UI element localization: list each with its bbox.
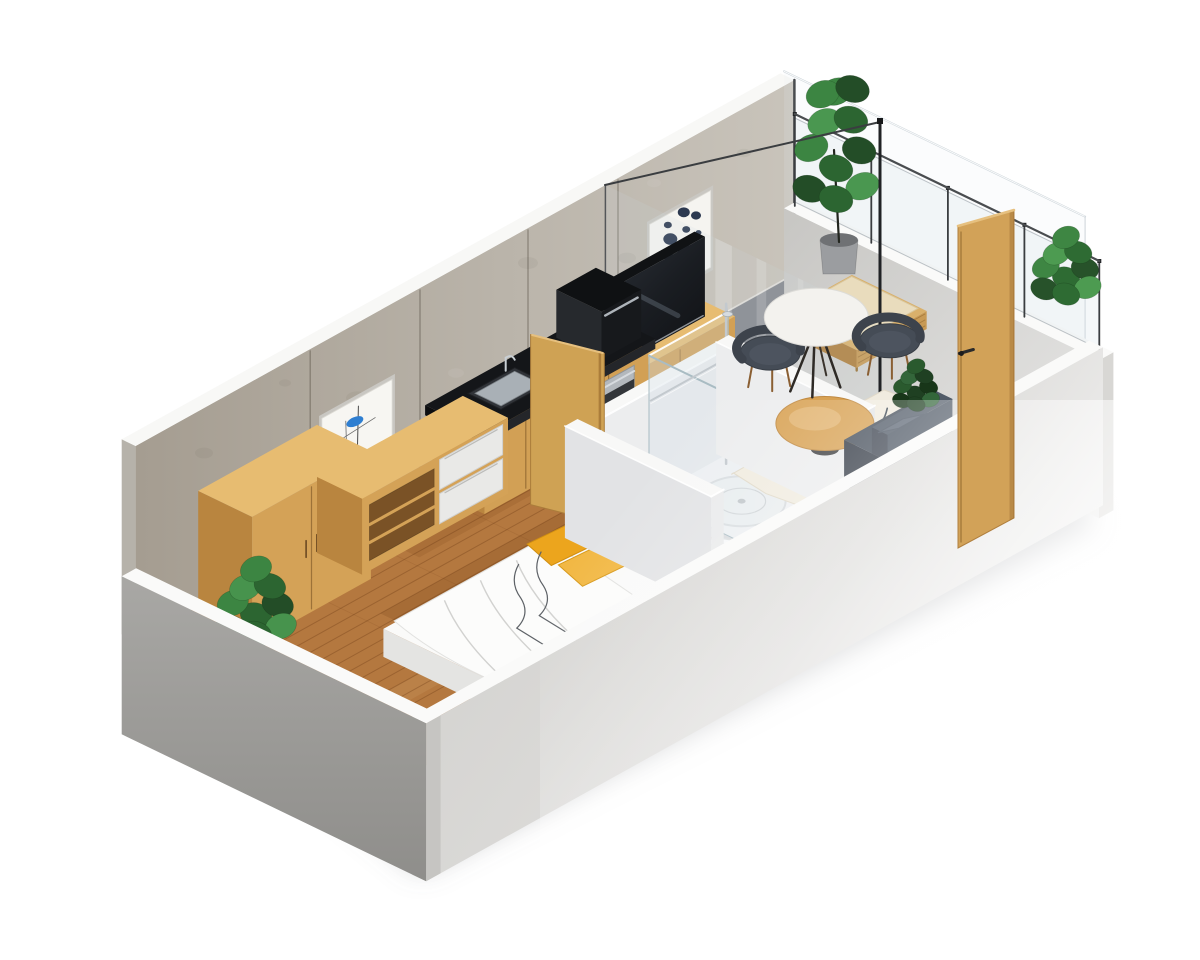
apartment-3d-render	[0, 0, 1200, 960]
white-fade	[540, 400, 1200, 960]
entry-door	[958, 210, 1014, 548]
floorplan-render-stage: 3D isometric cutaway floor plan of a stu…	[0, 0, 1200, 960]
